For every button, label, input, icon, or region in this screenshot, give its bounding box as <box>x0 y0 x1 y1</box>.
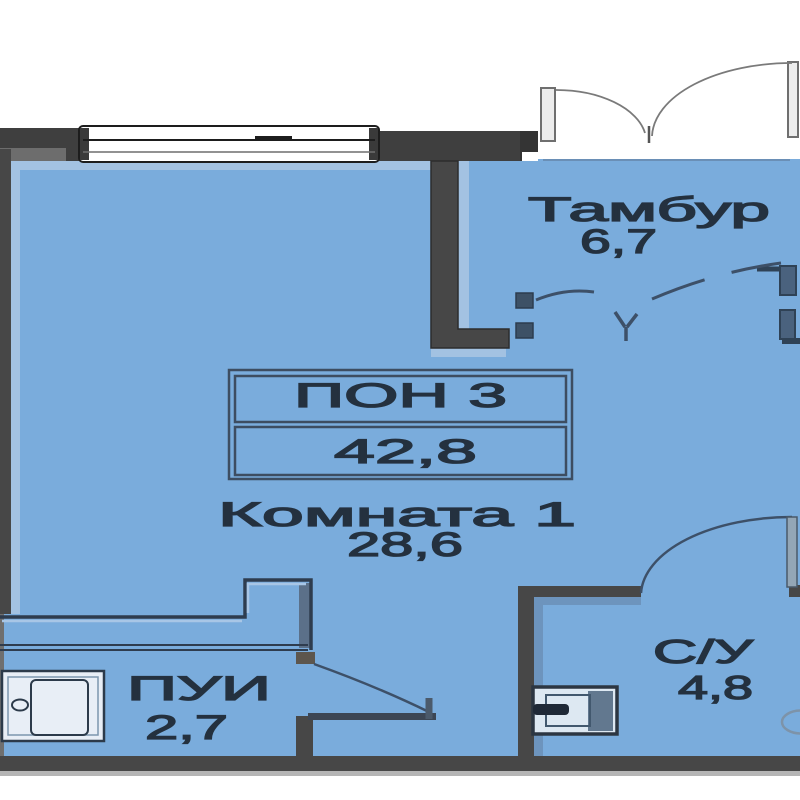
svg-text:ПУИ: ПУИ <box>127 670 271 708</box>
svg-text:28,6: 28,6 <box>347 526 463 564</box>
svg-text:4,8: 4,8 <box>678 669 753 706</box>
svg-text:С/У: С/У <box>653 633 755 670</box>
svg-text:42,8: 42,8 <box>334 433 477 471</box>
svg-text:ПОН 3: ПОН 3 <box>294 377 507 415</box>
svg-text:2,7: 2,7 <box>145 709 228 747</box>
svg-text:6,7: 6,7 <box>580 223 657 261</box>
